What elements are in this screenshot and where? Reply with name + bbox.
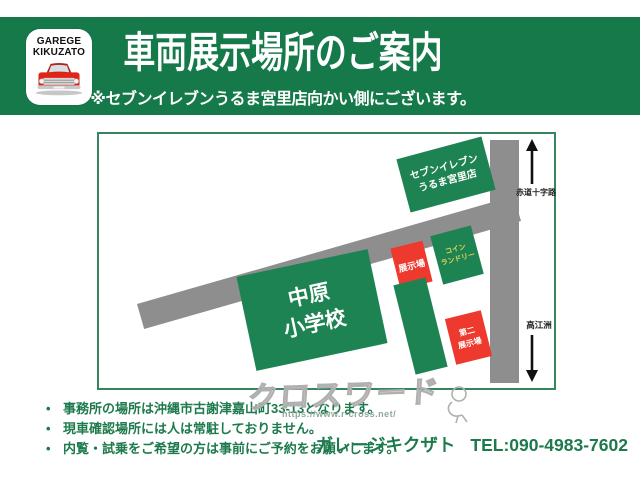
location-map: セブンイレブン うるま宮里店 中原 小学校 コイン ランドリー 展示場 第二 展… bbox=[97, 132, 556, 390]
shop-name: ガレージキクザト bbox=[316, 432, 456, 457]
page-title: 車両展示場所のご案内 bbox=[68, 27, 498, 79]
note-item-office-address: 事務所の場所は沖縄市古謝津嘉山町33-13となります。 bbox=[46, 399, 399, 419]
contact-footer: ガレージキクザト TEL:090-4983-7602 bbox=[316, 432, 628, 457]
phone-number: TEL:090-4983-7602 bbox=[470, 435, 628, 456]
map-block-second-exhibit-lot: 第二 展示場 bbox=[445, 310, 492, 365]
map-block-coin-laundry: コイン ランドリー bbox=[430, 225, 484, 284]
header-banner: GAREGE KIKUZATO 車両展示場所のご案内 ※セブンイレブンうるま宮里… bbox=[0, 17, 640, 115]
south-arrow-icon bbox=[525, 334, 539, 382]
south-road-label: 高江洲 bbox=[522, 319, 556, 331]
page-subtitle: ※セブンイレブンうるま宮里店向かい側にございます。 bbox=[0, 85, 566, 109]
map-block-school: 中原 小学校 bbox=[236, 249, 387, 371]
flyer-page: GAREGE KIKUZATO 車両展示場所のご案内 ※セブンイレブンうるま宮里… bbox=[0, 0, 640, 480]
north-road-label: 赤道十字路 bbox=[513, 187, 559, 198]
map-block-green-strip bbox=[393, 277, 447, 374]
vertical-road bbox=[490, 140, 519, 383]
watermark-mascot-icon bbox=[442, 385, 472, 425]
banner-titles: 車両展示場所のご案内 ※セブンイレブンうるま宮里店向かい側にございます。 bbox=[0, 17, 566, 115]
north-arrow-icon bbox=[525, 139, 539, 185]
map-block-seven-eleven: セブンイレブン うるま宮里店 bbox=[396, 137, 495, 213]
